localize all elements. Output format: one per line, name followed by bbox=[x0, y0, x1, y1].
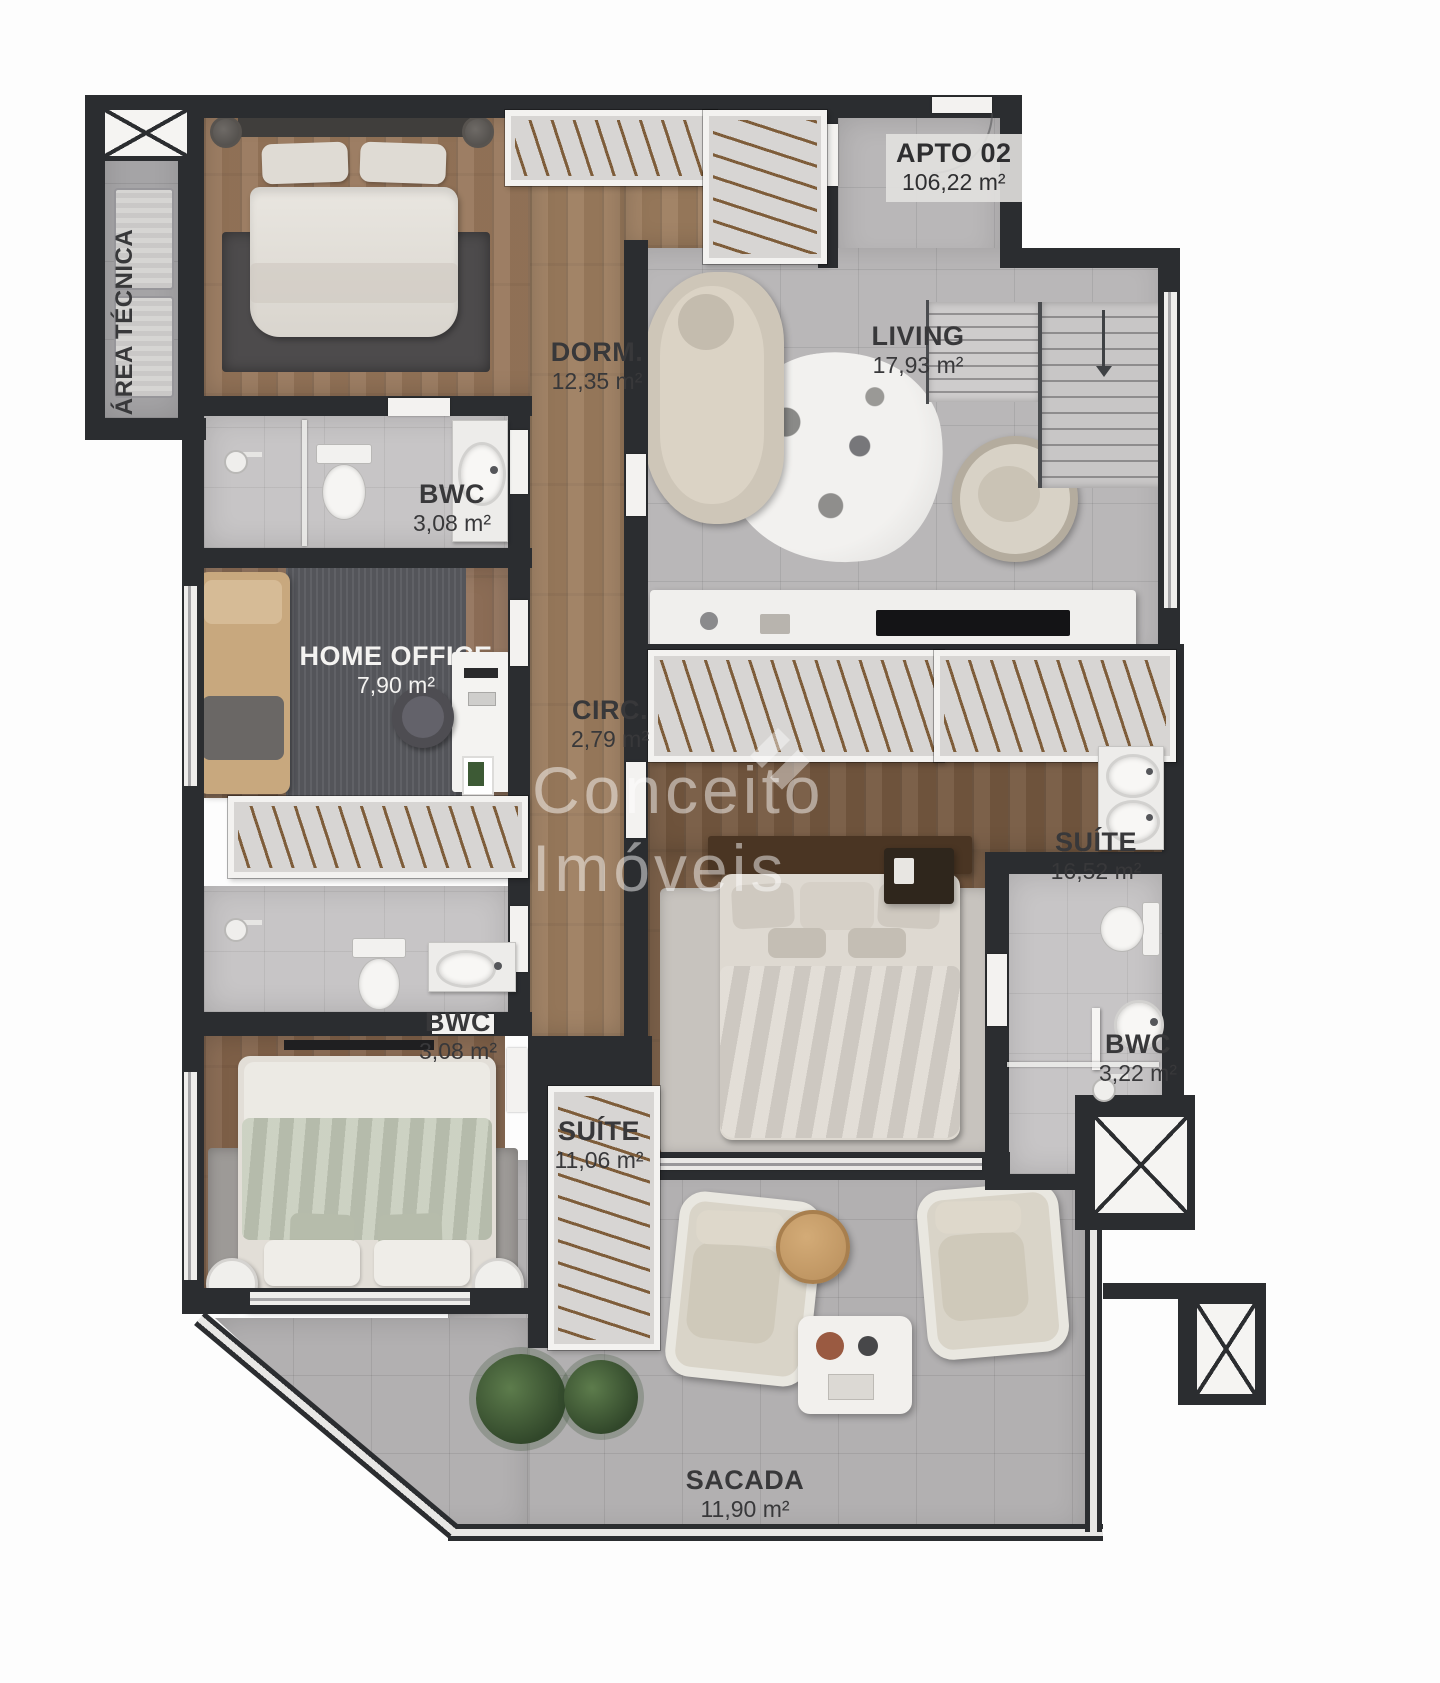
room-label-bwc-suite: BWC 3,22 m² bbox=[1099, 1030, 1177, 1086]
nightstand-lamp bbox=[210, 116, 242, 148]
window-home-office bbox=[184, 586, 197, 786]
door-opening-bwc-top bbox=[510, 430, 528, 494]
hanger-rail bbox=[944, 660, 1166, 752]
decor-books bbox=[760, 614, 790, 634]
tray bbox=[816, 1332, 844, 1360]
room-label-bwc-middle: BWC 3,08 m² bbox=[419, 1008, 497, 1064]
duvet bbox=[250, 187, 458, 337]
daybed-pillow bbox=[204, 580, 282, 624]
pillow bbox=[359, 142, 446, 185]
wall-bwc-office bbox=[182, 548, 532, 568]
window-suite-second bbox=[184, 1072, 197, 1280]
window-living bbox=[1164, 292, 1177, 608]
tv bbox=[876, 610, 1070, 636]
valet-items bbox=[894, 858, 914, 884]
cushion bbox=[848, 928, 906, 958]
office-chair-cushion bbox=[402, 696, 444, 738]
faucet bbox=[1146, 768, 1153, 775]
room-label-suite-master: SUÍTE 16,52 m² bbox=[1051, 828, 1142, 884]
elevator-shaft bbox=[1090, 1112, 1192, 1218]
toilet-bowl bbox=[358, 958, 400, 1010]
pillow bbox=[261, 142, 348, 185]
valet-table bbox=[884, 848, 954, 904]
wall-appendage-left bbox=[1178, 1283, 1192, 1405]
apartment-area: 106,22 m² bbox=[896, 169, 1012, 196]
faucet bbox=[1146, 814, 1153, 821]
door-opening-suite-bwc bbox=[987, 954, 1007, 1026]
floor-plan: APTO 02 106,22 m² ÁREA TÉCNICA DORM. 12,… bbox=[0, 0, 1440, 1683]
room-label-home-office: HOME OFFICE 7,90 m² bbox=[300, 642, 493, 698]
daybed-throw bbox=[202, 696, 284, 760]
apartment-title: APTO 02 106,22 m² bbox=[886, 134, 1022, 202]
door-opening-corridor-living bbox=[626, 454, 646, 516]
wall-tv bbox=[284, 1040, 434, 1050]
lounge-armchair bbox=[915, 1180, 1071, 1362]
watermark-line2: Imóveis bbox=[532, 830, 825, 908]
pillow bbox=[374, 1240, 470, 1286]
shower-head-icon bbox=[224, 450, 248, 474]
sink-basin bbox=[1106, 754, 1160, 798]
watermark-text: Conceito Imóveis bbox=[532, 752, 825, 908]
decor-bowl bbox=[858, 1336, 878, 1356]
nightstand-lamp bbox=[462, 116, 494, 148]
dorm-bed bbox=[236, 113, 472, 339]
hanger-rail bbox=[238, 806, 518, 868]
lounge-pillow bbox=[696, 1210, 785, 1247]
shower-glass-panel bbox=[302, 420, 307, 546]
room-label-dorm: DORM. 12,35 m² bbox=[551, 338, 644, 394]
window-suite-second-south bbox=[250, 1292, 470, 1305]
toilet-bowl bbox=[1100, 906, 1144, 952]
daybed-sofa bbox=[198, 572, 290, 794]
room-label-bwc-top: BWC 3,08 m² bbox=[413, 480, 491, 536]
wall-dorm-bwc bbox=[182, 396, 532, 416]
watermark-line1: Conceito bbox=[532, 752, 825, 830]
sink-basin bbox=[436, 950, 496, 988]
stair-divider bbox=[1038, 302, 1042, 488]
balcony-parapet-right bbox=[1085, 1230, 1102, 1532]
door-opening-dorm-bwc bbox=[388, 398, 450, 416]
plant bbox=[476, 1354, 566, 1444]
sofa-pillow bbox=[678, 294, 734, 350]
toilet-tank bbox=[316, 444, 372, 464]
picture-frame bbox=[462, 756, 494, 796]
lounge-cushion bbox=[937, 1229, 1030, 1322]
room-label-living: LIVING 17,93 m² bbox=[871, 322, 964, 378]
round-side-table bbox=[776, 1210, 850, 1284]
faucet bbox=[1150, 1018, 1158, 1026]
pillow bbox=[264, 1240, 360, 1286]
service-shaft bbox=[1192, 1299, 1260, 1399]
cushion bbox=[768, 928, 826, 958]
duvet bbox=[242, 1118, 492, 1240]
room-label-sacada: SACADA 11,90 m² bbox=[686, 1466, 805, 1522]
decor-vase bbox=[700, 612, 718, 630]
faucet bbox=[490, 466, 498, 474]
shower-head-icon bbox=[224, 918, 248, 942]
toilet-bowl bbox=[322, 464, 366, 520]
ventilation-shaft bbox=[100, 105, 192, 161]
blanket-fold bbox=[250, 263, 458, 303]
room-label-circulation: CIRC. 2,79 m² bbox=[571, 696, 649, 752]
entrance-door-opening bbox=[932, 97, 992, 113]
wardrobe-dorm bbox=[505, 110, 717, 186]
hanger-rail bbox=[515, 120, 707, 176]
stair-arrow-icon bbox=[1096, 366, 1112, 377]
wall-corridor-living bbox=[624, 240, 648, 660]
door-opening-home-office bbox=[510, 600, 528, 666]
wall-living-top-step bbox=[1000, 248, 1180, 268]
balcony-floor-corner bbox=[215, 1318, 530, 1532]
plant bbox=[564, 1360, 638, 1434]
balcony-parapet-bottom bbox=[448, 1524, 1103, 1541]
wardrobe-hall bbox=[703, 110, 827, 264]
lounge-pillow bbox=[935, 1200, 1022, 1233]
picture bbox=[468, 762, 484, 786]
apartment-name: APTO 02 bbox=[896, 138, 1012, 169]
door-opening-suite-second-side bbox=[507, 1048, 527, 1112]
hanger-rail bbox=[713, 120, 817, 254]
faucet bbox=[494, 962, 502, 970]
living-sofa bbox=[644, 272, 784, 524]
suite-second-bed bbox=[238, 1056, 496, 1310]
lounge-cushion bbox=[685, 1241, 783, 1346]
room-label-area-tecnica: ÁREA TÉCNICA bbox=[112, 229, 138, 415]
balcony-sliding-door bbox=[660, 1158, 982, 1170]
toilet-tank bbox=[1142, 902, 1160, 956]
duvet bbox=[720, 966, 960, 1138]
decor-book bbox=[828, 1374, 874, 1400]
room-label-suite-second: SUÍTE 11,06 m² bbox=[554, 1117, 643, 1173]
coffee-table bbox=[798, 1316, 912, 1414]
stair-direction-line bbox=[1102, 310, 1105, 368]
wardrobe-home-office bbox=[228, 796, 528, 878]
toilet-tank bbox=[352, 938, 406, 958]
